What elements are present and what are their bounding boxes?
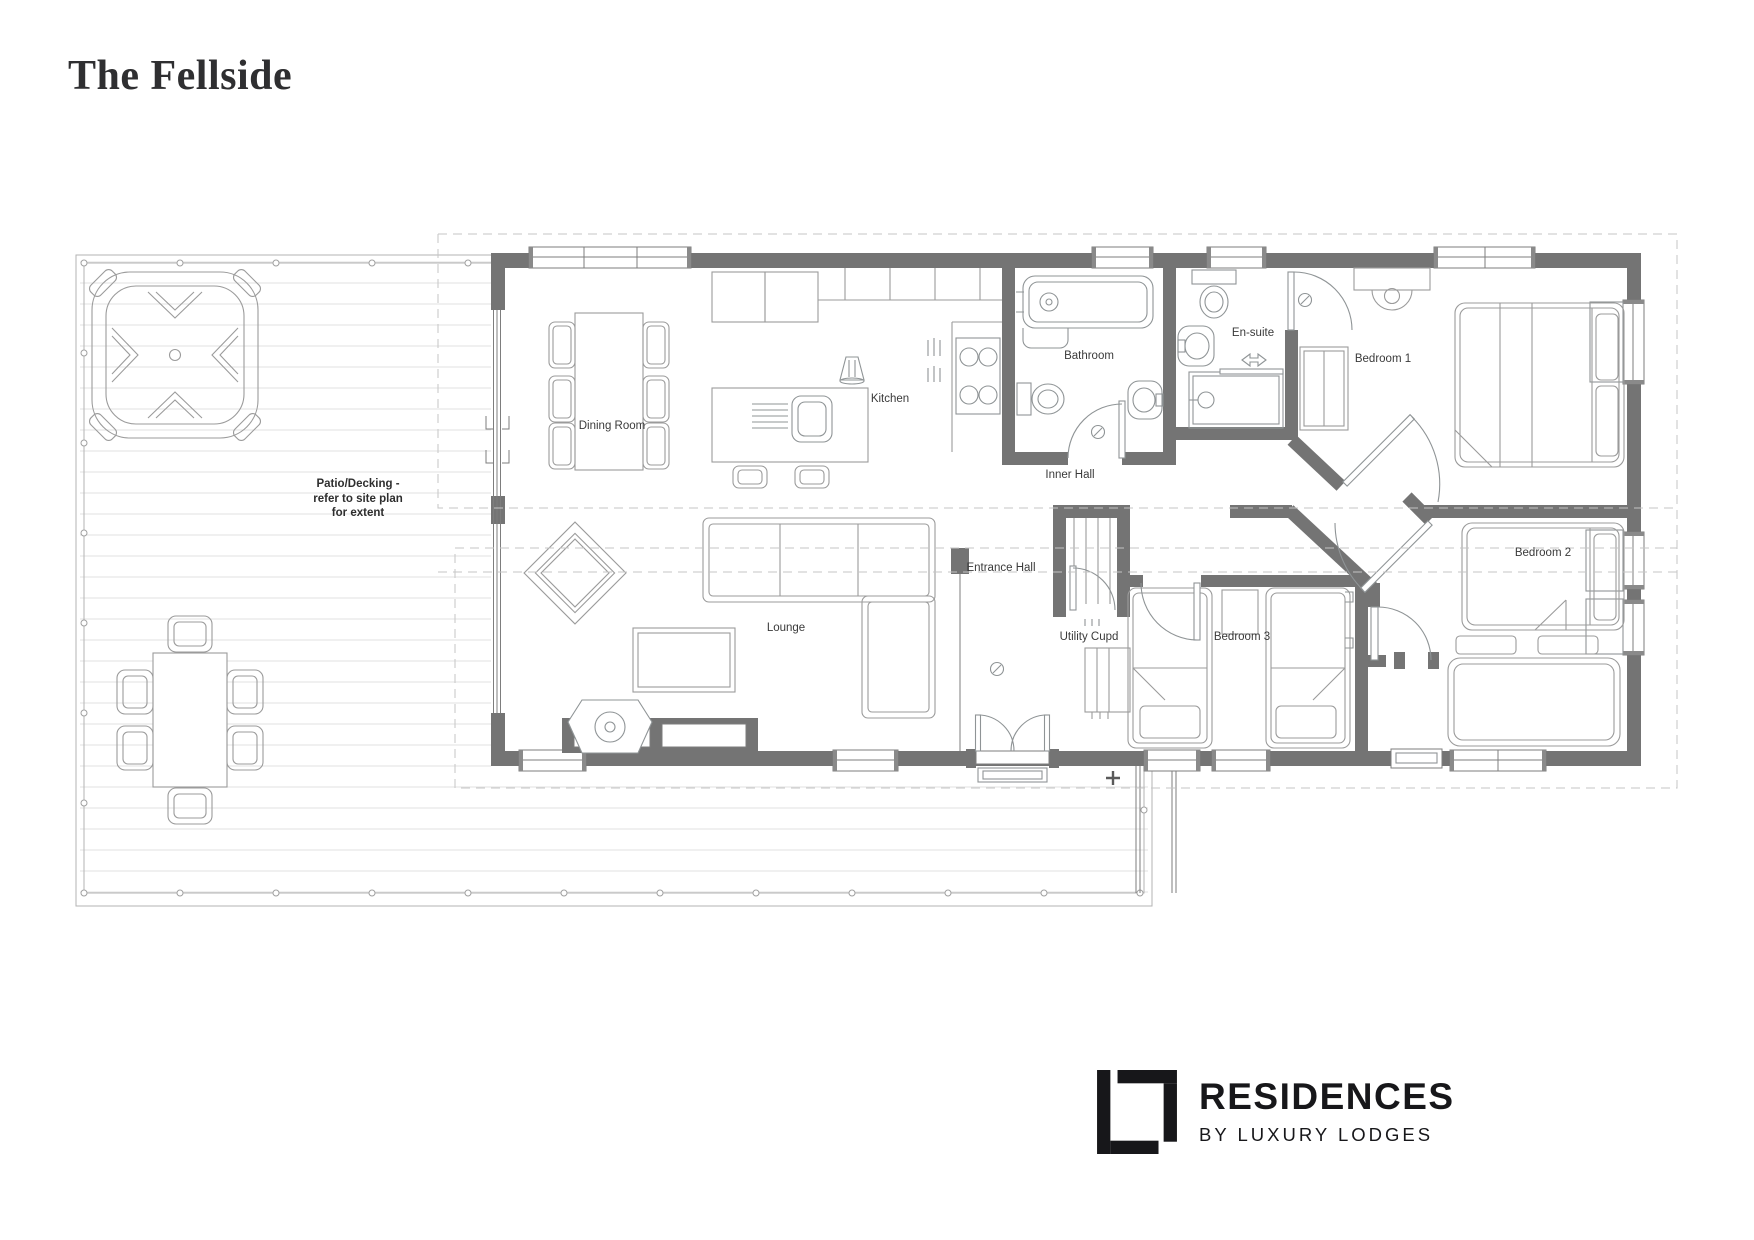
room-label-bathroom: Bathroom (1064, 350, 1114, 362)
room-label-bedroom1: Bedroom 1 (1355, 353, 1411, 365)
room-label-bedroom3: Bedroom 3 (1214, 631, 1270, 643)
entrance-threshold (976, 751, 1049, 764)
patio-note-line3: for extent (332, 507, 385, 519)
window (1434, 247, 1535, 268)
room-label-lounge: Lounge (767, 622, 805, 634)
luxury-lodges-monogram-icon (1097, 1070, 1177, 1154)
window (519, 750, 586, 771)
brand-logo: RESIDENCES BY LUXURY LODGES (1097, 1070, 1455, 1154)
window (1144, 750, 1200, 771)
drainage-cross-icon (1106, 771, 1120, 785)
window (529, 247, 691, 268)
window (1623, 532, 1644, 589)
window (1207, 247, 1266, 268)
floor-plan-page: The Fellside (0, 0, 1754, 1240)
window (1623, 300, 1644, 384)
logo-text: RESIDENCES BY LUXURY LODGES (1199, 1076, 1455, 1148)
room-label-ensuite: En-suite (1232, 327, 1274, 339)
hot-tub (87, 267, 262, 442)
window (1092, 247, 1153, 268)
entrance-step (978, 768, 1047, 782)
wood-burning-stove-icon (568, 700, 652, 753)
room-label-dining: Dining Room (579, 420, 645, 432)
window (833, 750, 898, 771)
window (1623, 600, 1644, 655)
utility-door (1070, 566, 1076, 610)
logo-tagline: BY LUXURY LODGES (1199, 1122, 1455, 1148)
outdoor-dining-set (117, 616, 263, 824)
room-label-inner-hall: Inner Hall (1045, 469, 1094, 481)
room-label-bedroom2: Bedroom 2 (1515, 547, 1571, 559)
window (1450, 750, 1546, 771)
rear-door (1391, 749, 1442, 768)
logo-brand: RESIDENCES (1199, 1076, 1455, 1118)
patio-note-line1: Patio/Decking - (316, 478, 399, 490)
room-label-utility: Utility Cupd (1060, 631, 1119, 643)
window (1212, 750, 1270, 771)
room-label-kitchen: Kitchen (871, 393, 909, 405)
patio-note-line2: refer to site plan (313, 493, 402, 505)
room-label-entrance-hall: Entrance Hall (966, 562, 1035, 574)
dining-table (575, 313, 643, 470)
floor-plan-drawing: Dining Room Kitchen Bathroom En-suite Be… (0, 0, 1754, 1240)
